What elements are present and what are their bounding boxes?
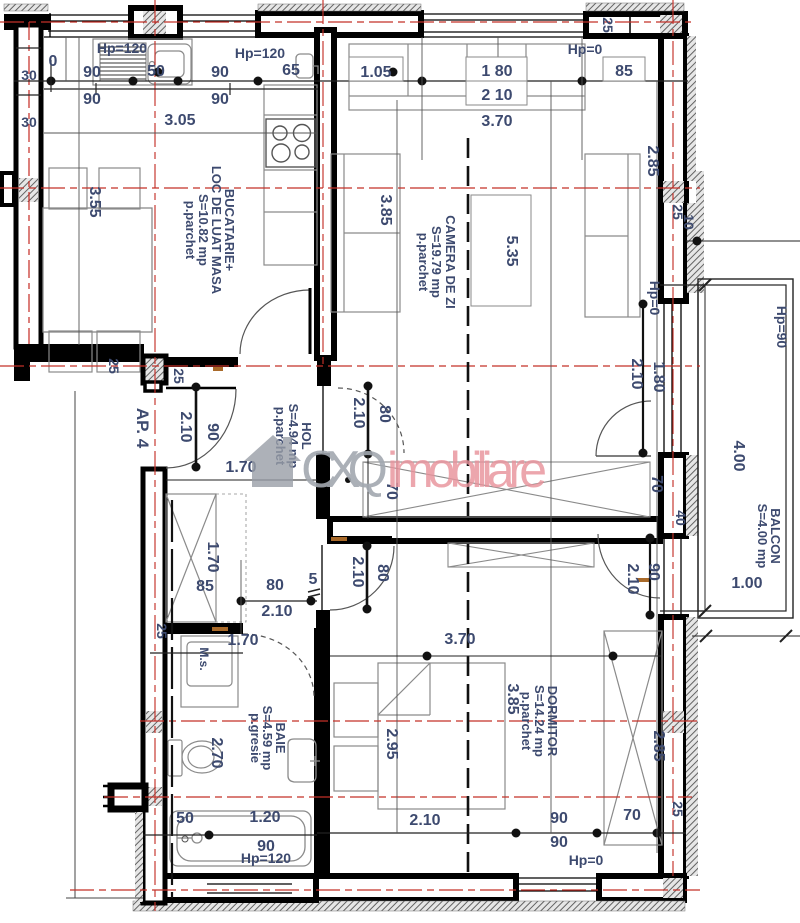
svg-text:Hp=90: Hp=90 xyxy=(774,306,790,349)
svg-text:70: 70 xyxy=(623,807,641,824)
svg-text:p.parchet: p.parchet xyxy=(183,201,198,260)
svg-text:1 80: 1 80 xyxy=(481,63,512,80)
svg-text:2.10: 2.10 xyxy=(624,563,641,594)
svg-text:2.10: 2.10 xyxy=(350,397,367,428)
svg-text:1.05: 1.05 xyxy=(360,64,391,81)
svg-text:3.05: 3.05 xyxy=(164,112,195,129)
svg-text:0: 0 xyxy=(49,53,58,70)
svg-text:p.parchet: p.parchet xyxy=(519,692,534,751)
svg-text:Hp=0: Hp=0 xyxy=(647,281,663,316)
svg-text:90: 90 xyxy=(83,91,101,108)
svg-text:25: 25 xyxy=(154,623,170,639)
svg-text:85: 85 xyxy=(615,63,633,80)
svg-text:40: 40 xyxy=(673,510,689,526)
svg-text:25: 25 xyxy=(171,368,187,384)
svg-text:3.85: 3.85 xyxy=(504,683,521,714)
svg-text:CXQ: CXQ xyxy=(301,441,386,499)
svg-text:90: 90 xyxy=(204,423,221,441)
svg-text:25: 25 xyxy=(600,17,616,33)
svg-text:5.35: 5.35 xyxy=(503,235,520,266)
svg-text:90: 90 xyxy=(83,64,101,81)
svg-text:1.80: 1.80 xyxy=(650,361,667,392)
svg-text:Hp=0: Hp=0 xyxy=(568,41,603,57)
svg-text:50: 50 xyxy=(147,63,165,80)
svg-text:Hp=120: Hp=120 xyxy=(241,850,291,866)
svg-text:2.10: 2.10 xyxy=(177,411,194,442)
svg-text:90: 90 xyxy=(550,810,568,827)
svg-text:1.00: 1.00 xyxy=(731,575,762,592)
svg-text:3.55: 3.55 xyxy=(86,186,103,217)
svg-text:25: 25 xyxy=(106,358,122,374)
svg-text:Hp=120: Hp=120 xyxy=(97,40,147,56)
svg-text:1.70: 1.70 xyxy=(227,632,258,649)
svg-text:30: 30 xyxy=(21,114,37,130)
svg-text:5: 5 xyxy=(309,571,318,588)
svg-text:25: 25 xyxy=(670,801,686,817)
svg-text:p.parchet: p.parchet xyxy=(416,233,431,292)
svg-text:2.95: 2.95 xyxy=(383,728,400,759)
svg-text:4.00: 4.00 xyxy=(730,440,747,471)
svg-text:S=4.00 mp: S=4.00 mp xyxy=(755,504,770,569)
svg-text:2.85: 2.85 xyxy=(650,730,667,761)
svg-text:80: 80 xyxy=(376,405,393,423)
svg-text:90: 90 xyxy=(645,563,662,581)
svg-text:CAMERA DE ZI: CAMERA DE ZI xyxy=(443,215,458,308)
svg-text:AP. 4: AP. 4 xyxy=(133,408,152,449)
svg-text:2.85: 2.85 xyxy=(644,145,661,176)
svg-text:3.70: 3.70 xyxy=(481,113,512,130)
svg-text:90: 90 xyxy=(211,64,229,81)
svg-text:2.10: 2.10 xyxy=(628,358,645,389)
svg-text:80: 80 xyxy=(374,564,391,582)
svg-text:90: 90 xyxy=(211,91,229,108)
svg-text:1.20: 1.20 xyxy=(249,809,280,826)
svg-text:2.70: 2.70 xyxy=(208,737,225,768)
svg-text:imobiliare: imobiliare xyxy=(387,442,545,498)
svg-text:10: 10 xyxy=(681,214,697,230)
svg-text:85: 85 xyxy=(196,578,214,595)
svg-text:80: 80 xyxy=(266,577,284,594)
svg-text:3.85: 3.85 xyxy=(377,194,394,225)
svg-text:1.70: 1.70 xyxy=(204,541,221,572)
svg-text:3.70: 3.70 xyxy=(444,631,475,648)
svg-text:p.gresie: p.gresie xyxy=(248,713,263,763)
svg-text:1.70: 1.70 xyxy=(225,459,256,476)
svg-text:2.10: 2.10 xyxy=(261,603,292,620)
svg-text:70: 70 xyxy=(648,475,665,493)
svg-text:Hp=0: Hp=0 xyxy=(569,852,604,868)
svg-text:90: 90 xyxy=(550,834,568,851)
svg-text:M.s.: M.s. xyxy=(197,647,211,670)
svg-text:2.10: 2.10 xyxy=(349,556,366,587)
svg-text:2 10: 2 10 xyxy=(481,87,512,104)
svg-text:65: 65 xyxy=(282,62,300,79)
svg-text:2.10: 2.10 xyxy=(409,812,440,829)
svg-text:Hp=120: Hp=120 xyxy=(235,45,285,61)
svg-text:50: 50 xyxy=(176,810,194,827)
svg-text:30: 30 xyxy=(21,67,37,83)
